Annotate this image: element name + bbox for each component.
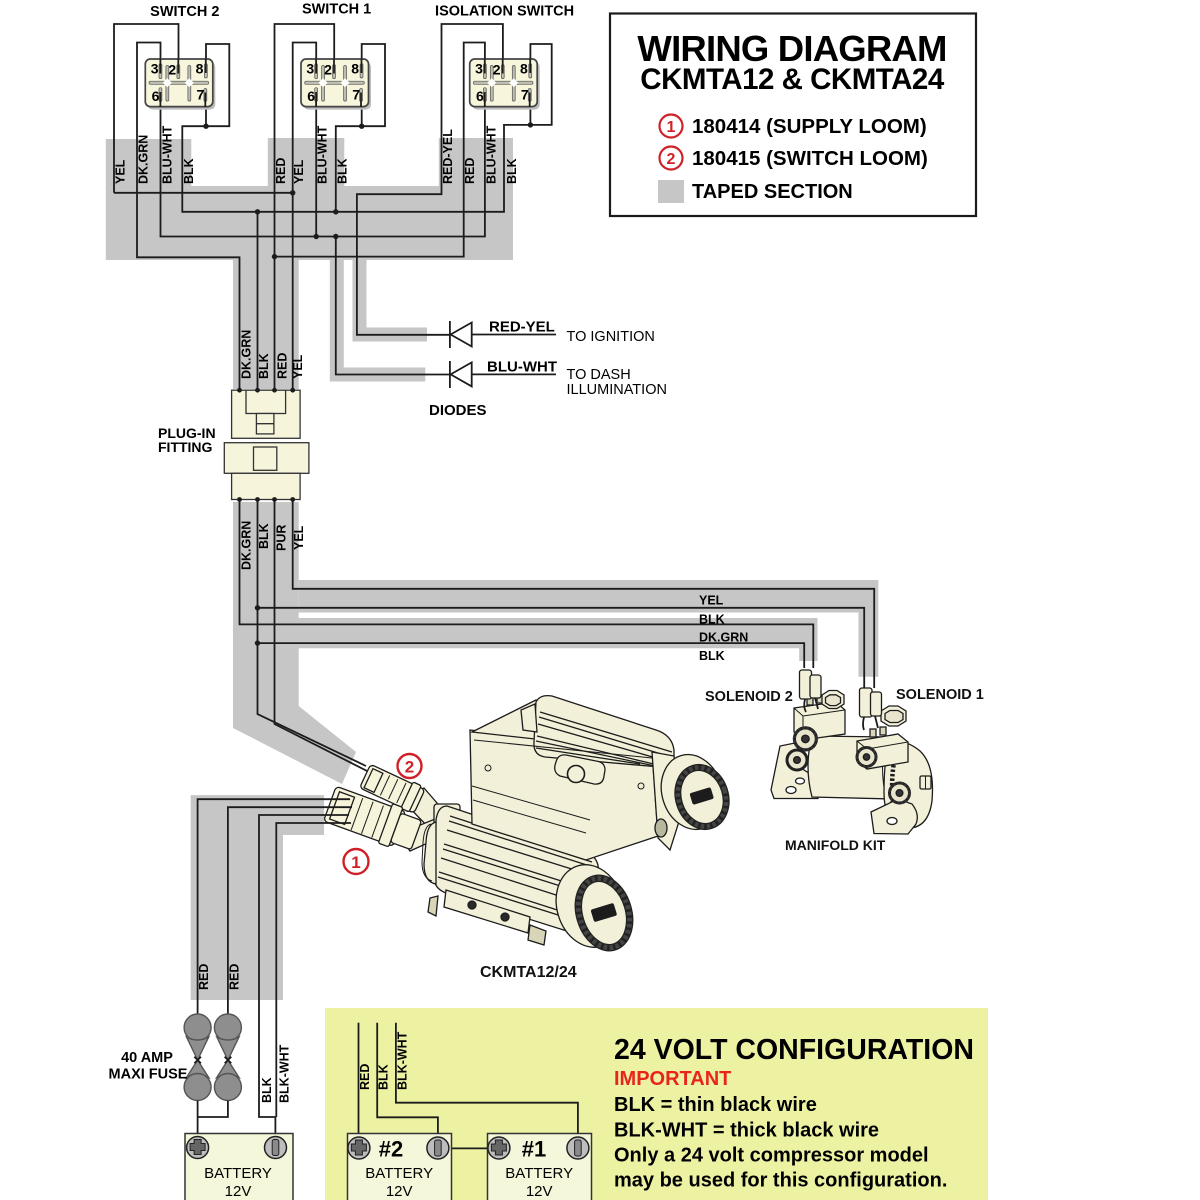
svg-text:BLK: BLK <box>182 158 196 184</box>
svg-text:RED: RED <box>276 353 290 379</box>
svg-text:BLK: BLK <box>699 613 725 627</box>
svg-text:BLK: BLK <box>335 158 349 184</box>
svg-text:ISOLATION SWITCH: ISOLATION SWITCH <box>435 4 574 20</box>
svg-text:RED-YEL: RED-YEL <box>489 319 555 336</box>
svg-text:BATTERY: BATTERY <box>505 1165 573 1182</box>
svg-text:DK.GRN: DK.GRN <box>240 521 254 570</box>
svg-text:BATTERY: BATTERY <box>204 1165 272 1182</box>
svg-text:CKMTA12 & CKMTA24: CKMTA12 & CKMTA24 <box>640 63 945 96</box>
svg-text:BLK: BLK <box>699 649 725 663</box>
svg-text:DIODES: DIODES <box>429 402 487 419</box>
svg-text:12V: 12V <box>526 1183 553 1200</box>
svg-text:YEL: YEL <box>292 525 306 550</box>
svg-text:FITTING: FITTING <box>158 439 213 455</box>
svg-text:180414 (SUPPLY LOOM): 180414 (SUPPLY LOOM) <box>692 115 927 138</box>
svg-text:YEL: YEL <box>114 159 128 184</box>
svg-text:SOLENOID 2: SOLENOID 2 <box>705 689 793 705</box>
svg-text:YEL: YEL <box>699 594 724 608</box>
svg-text:BATTERY: BATTERY <box>365 1165 433 1182</box>
svg-text:BLU-WHT: BLU-WHT <box>487 359 557 376</box>
svg-text:24 VOLT CONFIGURATION: 24 VOLT CONFIGURATION <box>614 1034 974 1066</box>
svg-text:PUR: PUR <box>275 525 289 551</box>
svg-text:YEL: YEL <box>291 354 305 379</box>
svg-text:SOLENOID 1: SOLENOID 1 <box>896 687 984 703</box>
svg-text:BLK-WHT = thick black wire: BLK-WHT = thick black wire <box>614 1120 879 1142</box>
svg-text:BLU-WHT: BLU-WHT <box>161 125 175 184</box>
svg-text:12V: 12V <box>386 1183 413 1200</box>
svg-text:RED: RED <box>197 964 211 990</box>
svg-text:DK.GRN: DK.GRN <box>137 135 151 184</box>
svg-text:BLK: BLK <box>257 353 271 379</box>
svg-text:may be used for this configura: may be used for this configuration. <box>614 1170 947 1192</box>
svg-text:YEL: YEL <box>292 159 306 184</box>
svg-text:1: 1 <box>351 853 360 872</box>
svg-text:BLU-WHT: BLU-WHT <box>484 125 498 184</box>
svg-text:MANIFOLD KIT: MANIFOLD KIT <box>785 837 886 853</box>
svg-text:40 AMP: 40 AMP <box>121 1050 173 1066</box>
svg-text:ILLUMINATION: ILLUMINATION <box>567 382 667 398</box>
svg-text:BLK: BLK <box>377 1064 391 1090</box>
svg-text:BLK-WHT: BLK-WHT <box>395 1031 409 1090</box>
svg-text:TAPED SECTION: TAPED SECTION <box>692 181 853 203</box>
svg-text:RED: RED <box>358 1064 372 1090</box>
svg-text:RED: RED <box>227 964 241 990</box>
svg-text:DK.GRN: DK.GRN <box>240 330 254 379</box>
svg-text:#1: #1 <box>522 1137 546 1162</box>
svg-text:DK.GRN: DK.GRN <box>699 630 748 644</box>
svg-text:TO IGNITION: TO IGNITION <box>567 329 655 345</box>
svg-text:SWITCH 2: SWITCH 2 <box>150 4 219 20</box>
svg-text:12V: 12V <box>225 1183 252 1200</box>
svg-text:BLU-WHT: BLU-WHT <box>316 125 330 184</box>
svg-text:2: 2 <box>405 758 414 777</box>
svg-text:IMPORTANT: IMPORTANT <box>614 1068 731 1090</box>
svg-text:BLK: BLK <box>257 523 271 549</box>
svg-text:1: 1 <box>667 119 676 136</box>
svg-text:MAXI FUSE: MAXI FUSE <box>109 1067 188 1083</box>
svg-text:RED: RED <box>274 158 288 184</box>
svg-text:#2: #2 <box>379 1137 403 1162</box>
svg-text:180415 (SWITCH LOOM): 180415 (SWITCH LOOM) <box>692 147 928 170</box>
svg-text:SWITCH 1: SWITCH 1 <box>302 2 371 18</box>
svg-text:Only a 24 volt compressor mode: Only a 24 volt compressor model <box>614 1145 929 1167</box>
svg-text:BLK: BLK <box>505 158 519 184</box>
svg-text:CKMTA12/24: CKMTA12/24 <box>480 964 577 981</box>
svg-text:BLK: BLK <box>260 1077 274 1103</box>
svg-text:BLK-WHT: BLK-WHT <box>278 1044 292 1103</box>
svg-text:2: 2 <box>667 151 676 168</box>
svg-text:BLK = thin black wire: BLK = thin black wire <box>614 1094 817 1116</box>
svg-text:RED-YEL: RED-YEL <box>441 129 455 184</box>
svg-text:RED: RED <box>463 158 477 184</box>
svg-text:TO DASH: TO DASH <box>567 367 631 383</box>
